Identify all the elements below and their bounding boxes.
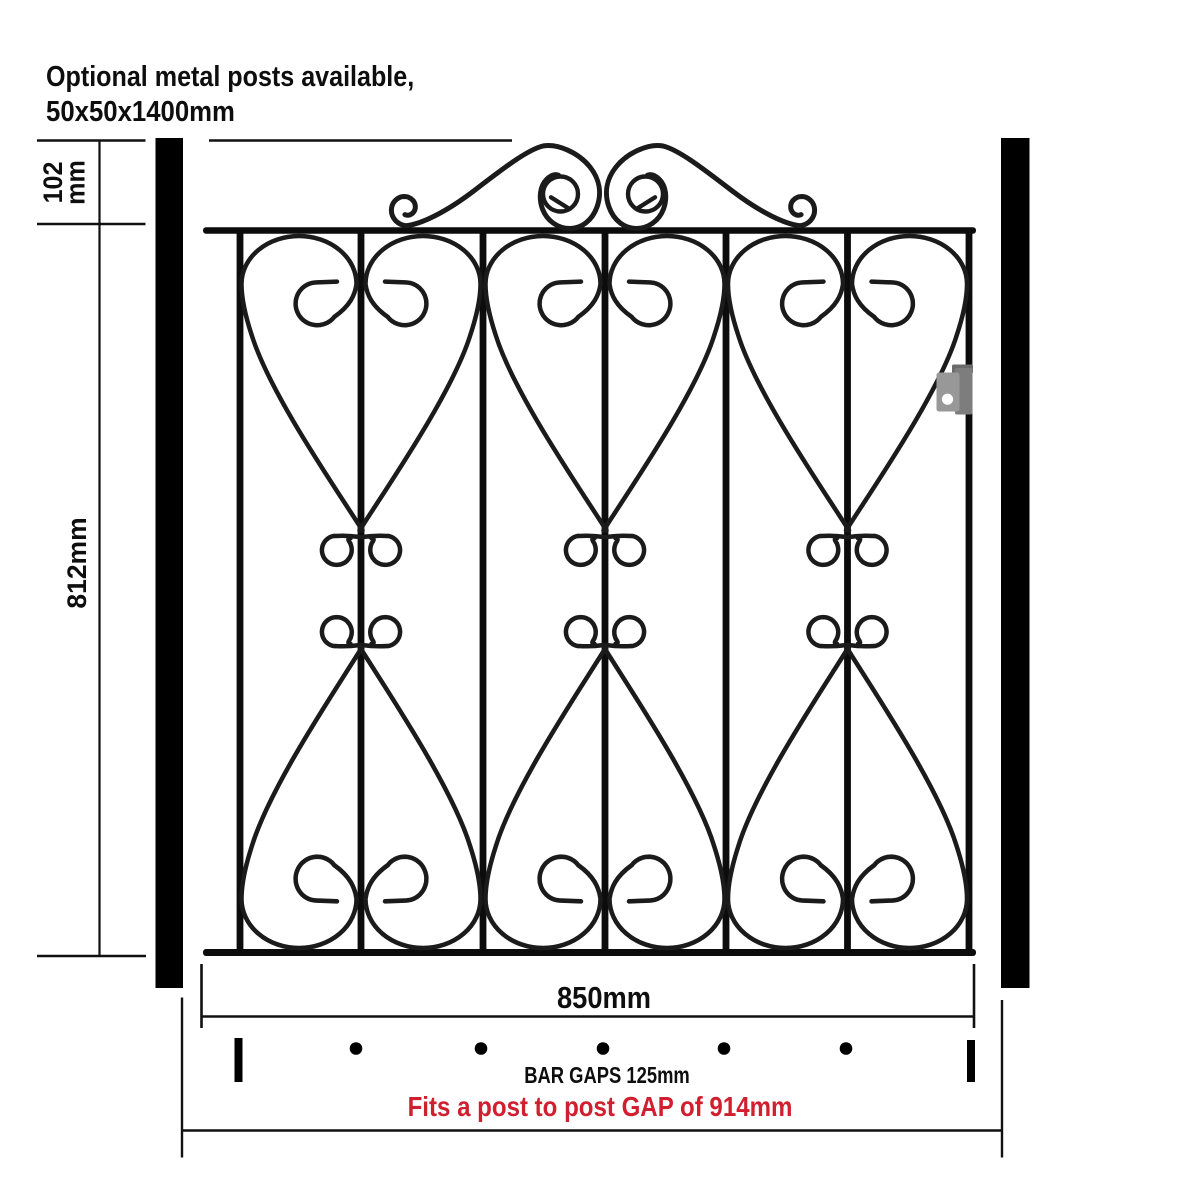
svg-text:mm: mm: [60, 160, 91, 205]
svg-text:850mm: 850mm: [557, 981, 651, 1015]
svg-text:Optional metal posts available: Optional metal posts available,: [46, 59, 414, 92]
svg-text:Fits a post to post GAP of 914: Fits a post to post GAP of 914mm: [408, 1090, 793, 1122]
svg-text:812mm: 812mm: [62, 517, 92, 608]
svg-text:50x50x1400mm: 50x50x1400mm: [46, 95, 235, 128]
svg-text:BAR GAPS 125mm: BAR GAPS 125mm: [524, 1063, 690, 1088]
